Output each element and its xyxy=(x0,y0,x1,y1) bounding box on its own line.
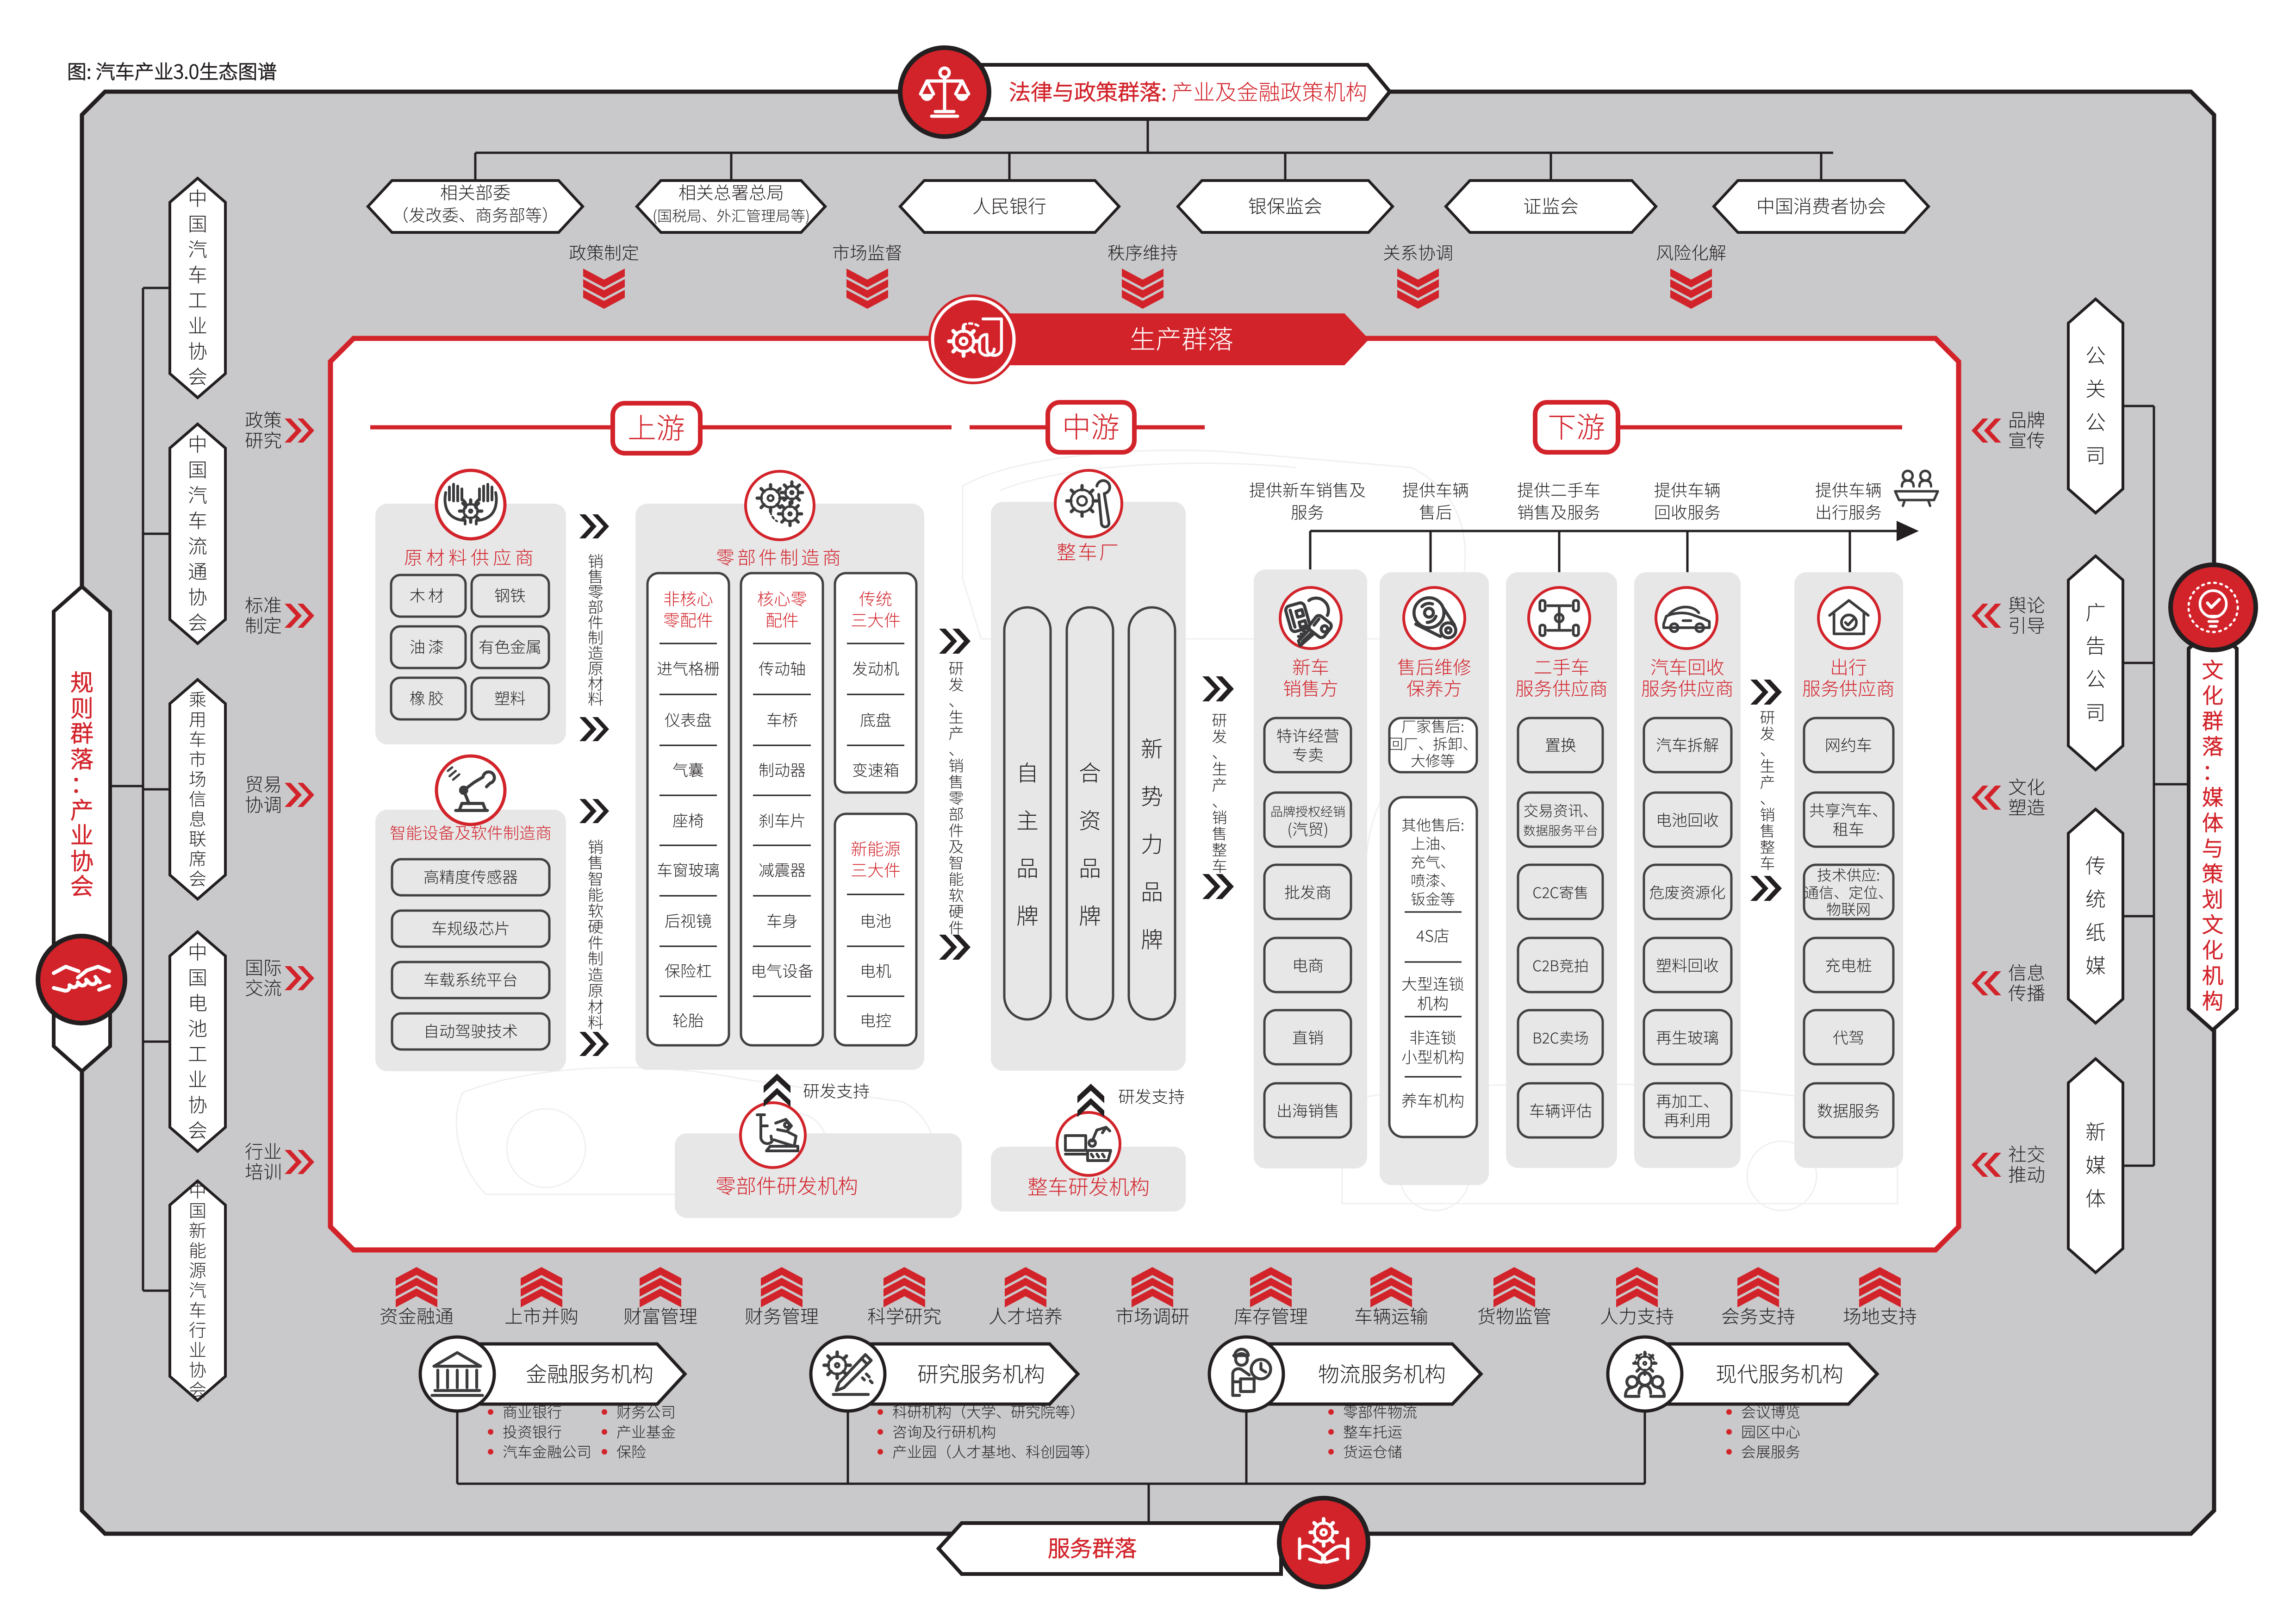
svg-text:货运仓储: 货运仓储 xyxy=(1343,1441,1402,1462)
svg-text:座椅: 座椅 xyxy=(672,808,704,831)
svg-text:会: 会 xyxy=(189,865,206,890)
svg-text:构: 构 xyxy=(2202,985,2223,1015)
svg-text:代驾: 代驾 xyxy=(1833,1025,1864,1048)
svg-text:电机: 电机 xyxy=(860,959,891,981)
svg-text:自: 自 xyxy=(1016,755,1039,787)
svg-text:力: 力 xyxy=(1141,826,1163,859)
svg-text:会: 会 xyxy=(70,868,93,901)
svg-text:回收服务: 回收服务 xyxy=(1654,500,1721,524)
svg-text:政策制定: 政策制定 xyxy=(569,239,639,264)
svg-text:物流服务机构: 物流服务机构 xyxy=(1318,1358,1446,1388)
svg-text:车: 车 xyxy=(1760,851,1775,874)
svg-text:流: 流 xyxy=(188,531,207,559)
svg-text:推动: 推动 xyxy=(2008,1160,2045,1187)
svg-text:研究: 研究 xyxy=(245,426,282,453)
svg-text:专卖: 专卖 xyxy=(1292,743,1324,765)
svg-text:有色金属: 有色金属 xyxy=(479,635,541,657)
svg-text:告: 告 xyxy=(2085,630,2106,659)
svg-text:提供二手车: 提供二手车 xyxy=(1517,477,1600,501)
svg-text:机构: 机构 xyxy=(1417,991,1449,1014)
svg-text:(国税局、外汇管理局等): (国税局、外汇管理局等) xyxy=(653,205,810,226)
svg-text:车载系统平台: 车载系统平台 xyxy=(423,968,518,990)
svg-text:保险杠: 保险杠 xyxy=(665,959,712,981)
svg-text:市场调研: 市场调研 xyxy=(1115,1302,1189,1329)
svg-text:气囊: 气囊 xyxy=(672,758,704,781)
svg-text:会展服务: 会展服务 xyxy=(1741,1441,1800,1462)
svg-text:咨询及行研机构: 咨询及行研机构 xyxy=(892,1421,996,1442)
svg-text:法律与政策群落: 产业及金融政策机构: 法律与政策群落: 产业及金融政策机构 xyxy=(1009,75,1367,106)
svg-text:中: 中 xyxy=(188,429,207,457)
svg-text:保养方: 保养方 xyxy=(1406,674,1462,701)
svg-text:电池回收: 电池回收 xyxy=(1656,808,1719,831)
svg-text:配件: 配件 xyxy=(765,607,799,631)
svg-text:关: 关 xyxy=(2085,373,2106,402)
svg-text:电: 电 xyxy=(188,988,207,1016)
svg-text:科研机构（大学、研究院等）: 科研机构（大学、研究院等） xyxy=(892,1401,1085,1422)
svg-text:工: 工 xyxy=(188,1039,207,1067)
svg-text:车规级芯片: 车规级芯片 xyxy=(431,916,510,939)
svg-text:货物监管: 货物监管 xyxy=(1477,1302,1551,1329)
svg-text:高精度传感器: 高精度传感器 xyxy=(423,865,518,887)
svg-text:零部件制造商: 零部件制造商 xyxy=(716,543,844,570)
svg-text:中: 中 xyxy=(188,183,207,212)
svg-text:自动驾驶技术: 自动驾驶技术 xyxy=(423,1019,518,1042)
svg-text:整车厂: 整车厂 xyxy=(1057,537,1120,565)
svg-text:置换: 置换 xyxy=(1545,733,1576,756)
svg-text:提供车辆: 提供车辆 xyxy=(1654,477,1721,501)
svg-text:主: 主 xyxy=(1016,803,1039,835)
svg-text:财务公司: 财务公司 xyxy=(616,1401,676,1422)
svg-text:相关总署总局: 相关总署总局 xyxy=(678,179,784,204)
svg-text:仪表盘: 仪表盘 xyxy=(665,708,712,731)
svg-text:协: 协 xyxy=(188,336,207,364)
svg-text:数据服务: 数据服务 xyxy=(1817,1099,1880,1121)
svg-text:后视镜: 后视镜 xyxy=(665,909,712,931)
svg-text:图: 汽车产业3.0生态图谱: 图: 汽车产业3.0生态图谱 xyxy=(67,56,277,85)
svg-text:品: 品 xyxy=(1016,850,1039,883)
svg-text:司: 司 xyxy=(2085,696,2106,726)
svg-text:资金融通: 资金融通 xyxy=(380,1302,454,1329)
svg-text:体: 体 xyxy=(2085,1182,2106,1212)
svg-text:提供新车销售及: 提供新车销售及 xyxy=(1249,477,1366,501)
svg-text:电控: 电控 xyxy=(860,1008,891,1031)
svg-text:中游: 中游 xyxy=(1062,404,1120,446)
svg-text:（发改委、商务部等）: （发改委、商务部等） xyxy=(392,202,559,226)
svg-text:销售及服务: 销售及服务 xyxy=(1517,500,1600,524)
svg-text:公: 公 xyxy=(2085,663,2106,693)
svg-text:中: 中 xyxy=(188,937,207,965)
svg-text:交易资讯、: 交易资讯、 xyxy=(1524,800,1598,821)
svg-text:大修等: 大修等 xyxy=(1411,750,1455,771)
svg-text:国: 国 xyxy=(188,455,207,483)
svg-text:橡胶: 橡胶 xyxy=(410,686,447,709)
svg-text:车: 车 xyxy=(1212,854,1227,876)
svg-text:再利用: 再利用 xyxy=(1664,1108,1711,1131)
svg-text:变速箱: 变速箱 xyxy=(852,758,899,781)
svg-text:交流: 交流 xyxy=(245,974,282,1000)
svg-text:服务供应商: 服务供应商 xyxy=(1641,674,1734,701)
svg-text:会: 会 xyxy=(188,362,207,390)
svg-text:库存管理: 库存管理 xyxy=(1234,1302,1308,1329)
svg-text:网约车: 网约车 xyxy=(1825,733,1872,756)
svg-text:工: 工 xyxy=(188,285,207,313)
svg-text:汽: 汽 xyxy=(188,480,207,508)
svg-text:培训: 培训 xyxy=(245,1157,282,1184)
svg-text:服务供应商: 服务供应商 xyxy=(1802,674,1895,701)
svg-text:三大件: 三大件 xyxy=(851,607,901,631)
svg-text:车身: 车身 xyxy=(766,909,798,931)
svg-text:制定: 制定 xyxy=(245,611,282,638)
svg-text:合: 合 xyxy=(1079,755,1101,787)
svg-text:上游: 上游 xyxy=(628,405,685,447)
svg-text:料: 料 xyxy=(588,687,604,709)
svg-text:相关部委: 相关部委 xyxy=(440,179,510,204)
svg-text:塑料回收: 塑料回收 xyxy=(1656,953,1719,976)
svg-text:司: 司 xyxy=(2085,439,2106,469)
svg-text:电气设备: 电气设备 xyxy=(751,959,814,981)
svg-text:投资银行: 投资银行 xyxy=(503,1421,562,1442)
svg-text:秩序维持: 秩序维持 xyxy=(1108,239,1178,264)
svg-text:汽车金融公司: 汽车金融公司 xyxy=(503,1441,591,1462)
svg-text:出行服务: 出行服务 xyxy=(1815,500,1882,524)
svg-text:会: 会 xyxy=(188,607,207,636)
svg-text:车窗玻璃: 车窗玻璃 xyxy=(657,858,720,881)
svg-text:木材: 木材 xyxy=(410,583,447,606)
svg-text:出海销售: 出海销售 xyxy=(1276,1099,1339,1121)
svg-text:塑造: 塑造 xyxy=(2008,793,2045,820)
svg-text:件: 件 xyxy=(949,916,964,938)
svg-text:租车: 租车 xyxy=(1833,817,1864,840)
svg-text:引导: 引导 xyxy=(2008,611,2045,638)
svg-text:进气格栅: 进气格栅 xyxy=(657,656,720,679)
svg-text:证监会: 证监会 xyxy=(1523,192,1579,219)
svg-text:售后: 售后 xyxy=(1419,500,1452,524)
svg-text:传: 传 xyxy=(2085,849,2106,879)
svg-text:商业银行: 商业银行 xyxy=(503,1401,562,1422)
svg-text:电商: 电商 xyxy=(1292,953,1324,976)
svg-text:传播: 传播 xyxy=(2008,979,2045,1006)
svg-text:广: 广 xyxy=(2085,596,2106,626)
svg-text:牌: 牌 xyxy=(1016,898,1039,931)
svg-text:刹车片: 刹车片 xyxy=(759,808,806,831)
svg-text:市场监督: 市场监督 xyxy=(832,239,902,264)
svg-text:提供车辆: 提供车辆 xyxy=(1402,477,1469,501)
svg-text:养车机构: 养车机构 xyxy=(1401,1088,1464,1111)
svg-text:直销: 直销 xyxy=(1292,1025,1324,1048)
svg-text:协: 协 xyxy=(188,1090,207,1118)
svg-text:小型机构: 小型机构 xyxy=(1401,1045,1464,1068)
svg-text:充电桩: 充电桩 xyxy=(1825,953,1872,976)
svg-text:研究服务机构: 研究服务机构 xyxy=(917,1358,1045,1388)
svg-text:非核心: 非核心 xyxy=(663,586,713,610)
svg-text:汽车拆解: 汽车拆解 xyxy=(1656,733,1719,756)
svg-text:电池: 电池 xyxy=(860,909,891,931)
svg-text:公: 公 xyxy=(2085,339,2106,369)
svg-text:物联网: 物联网 xyxy=(1826,898,1871,919)
svg-text:服务供应商: 服务供应商 xyxy=(1515,674,1608,701)
svg-text:原材料供应商: 原材料供应商 xyxy=(404,543,537,570)
svg-text:人民银行: 人民银行 xyxy=(972,192,1046,219)
svg-text:零部件物流: 零部件物流 xyxy=(1343,1401,1417,1422)
svg-text:财务管理: 财务管理 xyxy=(745,1302,819,1329)
svg-text:保险: 保险 xyxy=(616,1441,646,1462)
svg-text:4S店: 4S店 xyxy=(1416,924,1450,946)
svg-text:塑料: 塑料 xyxy=(494,686,526,709)
svg-text:车桥: 车桥 xyxy=(766,708,798,731)
svg-text:研发支持: 研发支持 xyxy=(1118,1084,1185,1108)
svg-text:数据服务平台: 数据服务平台 xyxy=(1523,821,1598,839)
svg-text:品: 品 xyxy=(1079,850,1101,883)
svg-text:风险化解: 风险化解 xyxy=(1656,239,1726,264)
svg-text:宣传: 宣传 xyxy=(2008,426,2045,453)
svg-text:生产群落: 生产群落 xyxy=(1130,319,1233,356)
svg-text:园区中心: 园区中心 xyxy=(1741,1421,1800,1442)
svg-text:协调: 协调 xyxy=(245,790,282,817)
svg-text:底盘: 底盘 xyxy=(860,708,891,731)
svg-text:业: 业 xyxy=(188,311,207,339)
svg-text:产业园（人才基地、科创园等）: 产业园（人才基地、科创园等） xyxy=(892,1441,1100,1462)
svg-text:车: 车 xyxy=(188,506,207,534)
svg-text:车: 车 xyxy=(188,260,207,288)
svg-text:C2C寄售: C2C寄售 xyxy=(1532,881,1588,903)
svg-text:媒: 媒 xyxy=(2085,1149,2106,1179)
svg-text:人才培养: 人才培养 xyxy=(989,1302,1063,1329)
svg-text:媒: 媒 xyxy=(2085,949,2106,979)
svg-text:整车研发机构: 整车研发机构 xyxy=(1027,1171,1150,1200)
svg-text:国: 国 xyxy=(188,209,207,237)
svg-text:公: 公 xyxy=(2085,406,2106,436)
svg-text:会: 会 xyxy=(188,1115,207,1143)
svg-text:银保监会: 银保监会 xyxy=(1248,192,1322,219)
svg-text:传动轴: 传动轴 xyxy=(759,656,806,679)
svg-text:通: 通 xyxy=(188,556,207,585)
svg-text:制动器: 制动器 xyxy=(759,758,806,781)
svg-text:协: 协 xyxy=(188,582,207,610)
svg-text:(汽贸): (汽贸) xyxy=(1287,817,1328,840)
svg-text:核心零: 核心零 xyxy=(757,586,807,610)
svg-text:势: 势 xyxy=(1141,779,1163,811)
svg-text:研发支持: 研发支持 xyxy=(803,1078,870,1102)
svg-text:牌: 牌 xyxy=(1141,922,1163,954)
svg-text:牌: 牌 xyxy=(1079,898,1101,931)
svg-text:财富管理: 财富管理 xyxy=(623,1302,697,1329)
svg-text:再生玻璃: 再生玻璃 xyxy=(1656,1025,1719,1048)
svg-text:智能设备及软件制造商: 智能设备及软件制造商 xyxy=(390,820,552,844)
svg-text:金融服务机构: 金融服务机构 xyxy=(526,1358,653,1388)
svg-text:汽: 汽 xyxy=(188,234,207,262)
svg-text:资: 资 xyxy=(1079,803,1101,835)
svg-text:会议博览: 会议博览 xyxy=(1741,1401,1800,1422)
svg-text:服务: 服务 xyxy=(1291,500,1324,524)
svg-text:关系协调: 关系协调 xyxy=(1383,239,1453,264)
svg-text:上市并购: 上市并购 xyxy=(504,1302,579,1329)
svg-text:车辆运输: 车辆运输 xyxy=(1354,1302,1428,1329)
svg-text:人力支持: 人力支持 xyxy=(1600,1302,1674,1329)
svg-text:会务支持: 会务支持 xyxy=(1721,1302,1795,1329)
svg-text:新: 新 xyxy=(1141,731,1163,763)
svg-text:新: 新 xyxy=(2085,1116,2106,1145)
svg-text:危废资源化: 危废资源化 xyxy=(1649,881,1726,903)
svg-text:钢铁: 钢铁 xyxy=(494,583,526,606)
svg-text:中国消费者协会: 中国消费者协会 xyxy=(1756,192,1886,219)
svg-text:提供车辆: 提供车辆 xyxy=(1815,477,1882,501)
svg-text:服务群落: 服务群落 xyxy=(1048,1530,1137,1563)
svg-text:会: 会 xyxy=(189,1376,206,1401)
svg-text:池: 池 xyxy=(188,1013,207,1042)
svg-text:现代服务机构: 现代服务机构 xyxy=(1716,1358,1843,1388)
svg-text:料: 料 xyxy=(588,1010,604,1033)
svg-text:三大件: 三大件 xyxy=(851,857,901,881)
svg-text:产业基金: 产业基金 xyxy=(616,1421,676,1442)
svg-text:下游: 下游 xyxy=(1548,404,1605,446)
svg-text:轮胎: 轮胎 xyxy=(672,1008,704,1031)
svg-text:统: 统 xyxy=(2085,883,2106,912)
svg-text:新能源: 新能源 xyxy=(851,836,901,860)
svg-text:销售方: 销售方 xyxy=(1283,674,1338,701)
svg-text:减震器: 减震器 xyxy=(759,858,806,881)
svg-text:批发商: 批发商 xyxy=(1284,880,1332,903)
svg-text:整车托运: 整车托运 xyxy=(1343,1421,1402,1442)
svg-text:钣金等: 钣金等 xyxy=(1411,888,1455,909)
svg-text:纸: 纸 xyxy=(2085,916,2106,946)
svg-text:发动机: 发动机 xyxy=(852,656,899,679)
svg-text:品: 品 xyxy=(1141,874,1163,906)
svg-text:C2B竞拍: C2B竞拍 xyxy=(1532,955,1589,976)
svg-text:零部件研发机构: 零部件研发机构 xyxy=(716,1170,858,1199)
svg-text:场地支持: 场地支持 xyxy=(1843,1302,1917,1329)
svg-text:零配件: 零配件 xyxy=(663,607,713,631)
svg-text:B2C卖场: B2C卖场 xyxy=(1532,1027,1589,1048)
svg-text:国: 国 xyxy=(188,962,207,991)
svg-text:车辆评估: 车辆评估 xyxy=(1529,1099,1592,1121)
svg-text:油漆: 油漆 xyxy=(410,635,447,657)
svg-text:传统: 传统 xyxy=(859,586,892,610)
svg-text:业: 业 xyxy=(188,1064,207,1093)
svg-text:科学研究: 科学研究 xyxy=(867,1302,941,1329)
